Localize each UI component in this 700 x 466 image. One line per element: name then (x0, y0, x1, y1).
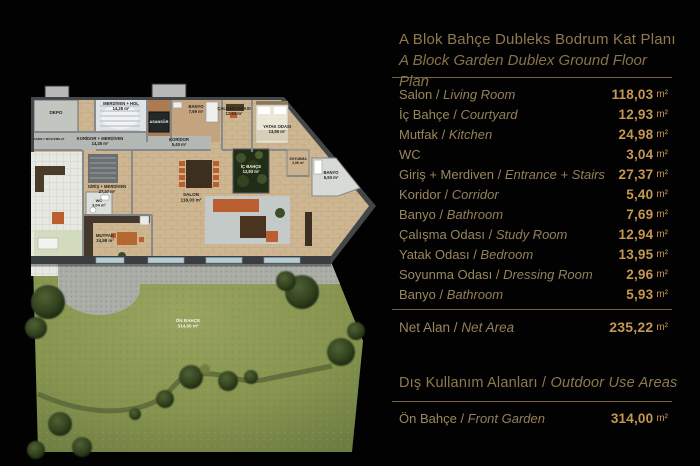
plan-label: DEPO (49, 110, 62, 115)
plan-label-area: 118,03 m² (181, 198, 202, 203)
room-area-unit: m² (656, 89, 668, 100)
room-area-value: 118,03 (612, 87, 654, 102)
plan-label-area: 12,93 m² (243, 169, 260, 174)
plan-label: SALON (183, 192, 200, 197)
room-name-en: Study Room (496, 227, 568, 242)
room-area-value: 3,04 (626, 147, 653, 162)
table-row: Koridor / Corridor 5,40m² (399, 184, 668, 204)
plan-label-area: 14,28 m² (113, 106, 130, 111)
plan-label-area: 14,35 m² (92, 141, 109, 146)
front-garden-row: Ön Bahçe / Front Garden 314,00m² (399, 408, 668, 428)
table-row: İç Bahçe / Courtyard 12,93m² (399, 104, 668, 124)
floor-plan-image: DEPO MERDİVEN + HOL 14,28 m² ASANSÖR BAN… (0, 0, 380, 466)
label-separator: / (470, 247, 481, 262)
room-bedroom (256, 101, 288, 143)
room-area-unit: m² (656, 189, 668, 200)
room-area-unit: m² (656, 269, 668, 280)
room-entrance-stairs (88, 154, 118, 183)
front-garden-en: Front Garden (468, 411, 545, 426)
room-area-value: 12,93 (619, 107, 654, 122)
room-name-tr: Koridor (399, 187, 441, 202)
table-row: Giriş + Merdiven / Entrance + Stairs 27,… (399, 164, 668, 184)
divider (392, 309, 672, 310)
plan-title: A Blok Bahçe Dubleks Bodrum Kat Planı A … (399, 29, 678, 92)
room-area-unit: m² (656, 289, 668, 300)
divider (392, 401, 672, 402)
plan-label: DAİRE 7 MÜŞTEMİLAT (34, 137, 65, 141)
room-area-unit: m² (656, 169, 668, 180)
bottom-wall (31, 256, 331, 264)
room-name-tr: Mutfak (399, 127, 438, 142)
label-separator: / (457, 411, 468, 426)
outdoor-heading: Dış Kullanım Alanları / Outdoor Use Area… (399, 375, 677, 391)
plan-label-area: 5,40 m² (172, 142, 187, 147)
floor-plan-svg: DEPO MERDİVEN + HOL 14,28 m² ASANSÖR BAN… (0, 0, 380, 466)
plan-label-area: 314,00 m² (178, 324, 199, 329)
room-name-en: Living Room (443, 87, 515, 102)
net-area-tr: Net Alan (399, 320, 450, 335)
room-area-unit: m² (656, 249, 668, 260)
label-separator: / (538, 375, 551, 391)
room-area-value: 13,95 (619, 247, 654, 262)
table-row: WC 3,04m² (399, 144, 668, 164)
plan-label-area: 7,69 m² (189, 109, 204, 114)
front-garden (25, 262, 365, 459)
net-area-value: 235,22 (609, 319, 653, 335)
outdoor-heading-tr: Dış Kullanım Alanları (399, 375, 538, 391)
room-area-value: 7,69 (626, 207, 653, 222)
plan-label-area: 2,96 m² (292, 161, 305, 165)
label-separator: / (492, 267, 503, 282)
room-area-unit: m² (656, 109, 668, 120)
room-area-unit: m² (656, 209, 668, 220)
net-area-en: Net Area (461, 320, 514, 335)
left-patio-room (31, 152, 83, 262)
plan-label-area: 3,04 m² (92, 203, 106, 208)
room-name-en: Bathroom (447, 207, 503, 222)
room-area-unit: m² (656, 129, 668, 140)
table-row: Yatak Odası / Bedroom 13,95m² (399, 245, 668, 265)
plan-label: ÖN BAHÇE (176, 317, 201, 323)
front-garden-tr: Ön Bahçe (399, 411, 457, 426)
outdoor-heading-en: Outdoor Use Areas (550, 375, 677, 391)
room-name-tr: Yatak Odası (399, 247, 470, 262)
room-name-tr: Giriş + Merdiven (399, 167, 494, 182)
net-area-unit: m² (656, 322, 668, 333)
plan-label: ASANSÖR (150, 119, 169, 124)
brochure-page: DEPO MERDİVEN + HOL 14,28 m² ASANSÖR BAN… (0, 0, 700, 466)
room-name-tr: Banyo (399, 207, 436, 222)
label-separator: / (438, 127, 449, 142)
plan-label-area: 24,98 m² (96, 238, 114, 243)
room-name-tr: Çalışma Odası (399, 227, 485, 242)
front-garden-unit: m² (656, 413, 668, 424)
corridor-main (34, 132, 147, 150)
label-separator: / (450, 107, 461, 122)
divider (392, 77, 672, 78)
label-separator: / (494, 167, 505, 182)
room-area-value: 5,93 (626, 287, 653, 302)
room-name-tr: İç Bahçe (399, 107, 450, 122)
room-name-tr: WC (399, 147, 421, 162)
label-separator: / (432, 87, 443, 102)
label-separator: / (450, 320, 461, 335)
plan-label-area: 13,95 m² (269, 129, 286, 134)
room-name-tr: Banyo (399, 287, 436, 302)
room-name-en: Dressing Room (503, 267, 593, 282)
room-name-en: Courtyard (460, 107, 517, 122)
plan-label-area: 5,93 m² (324, 175, 339, 180)
label-separator: / (436, 207, 447, 222)
front-garden-value: 314,00 (611, 411, 654, 426)
table-row: Banyo / Bathroom 5,93m² (399, 285, 668, 305)
label-separator: / (441, 187, 452, 202)
room-storage (34, 100, 78, 132)
plan-label-area: 12,94 m² (226, 111, 243, 116)
net-area-row: Net Alan / Net Area 235,22m² (399, 317, 668, 337)
room-name-en: Bedroom (480, 247, 533, 262)
room-area-table: Salon / Living Room 118,03m² İç Bahçe / … (399, 84, 668, 305)
table-row: Salon / Living Room 118,03m² (399, 84, 668, 104)
chimney (152, 84, 186, 98)
room-name-tr: Soyunma Odası (399, 267, 492, 282)
room-name-en: Corridor (452, 187, 499, 202)
room-area-unit: m² (656, 229, 668, 240)
room-name-en: Bathroom (447, 287, 503, 302)
room-name-tr: Salon (399, 87, 432, 102)
table-row: Çalışma Odası / Study Room 12,94m² (399, 225, 668, 245)
table-row: Banyo / Bathroom 7,69m² (399, 205, 668, 225)
plan-label-area: 27,37 m² (99, 189, 116, 194)
room-area-value: 27,37 (619, 167, 654, 182)
table-row: Soyunma Odası / Dressing Room 2,96m² (399, 265, 668, 285)
room-area-value: 2,96 (626, 267, 653, 282)
table-row: Mutfak / Kitchen 24,98m² (399, 124, 668, 144)
room-area-value: 5,40 (626, 187, 653, 202)
room-name-en: Entrance + Stairs (505, 167, 605, 182)
label-separator: / (436, 287, 447, 302)
room-area-value: 24,98 (619, 127, 654, 142)
plan-title-tr: A Blok Bahçe Dubleks Bodrum Kat Planı (399, 29, 678, 50)
room-area-unit: m² (656, 149, 668, 160)
room-area-value: 12,94 (619, 227, 654, 242)
room-name-en: Kitchen (449, 127, 492, 142)
label-separator: / (485, 227, 496, 242)
area-table-panel: A Blok Bahçe Dubleks Bodrum Kat Planı A … (392, 0, 678, 466)
